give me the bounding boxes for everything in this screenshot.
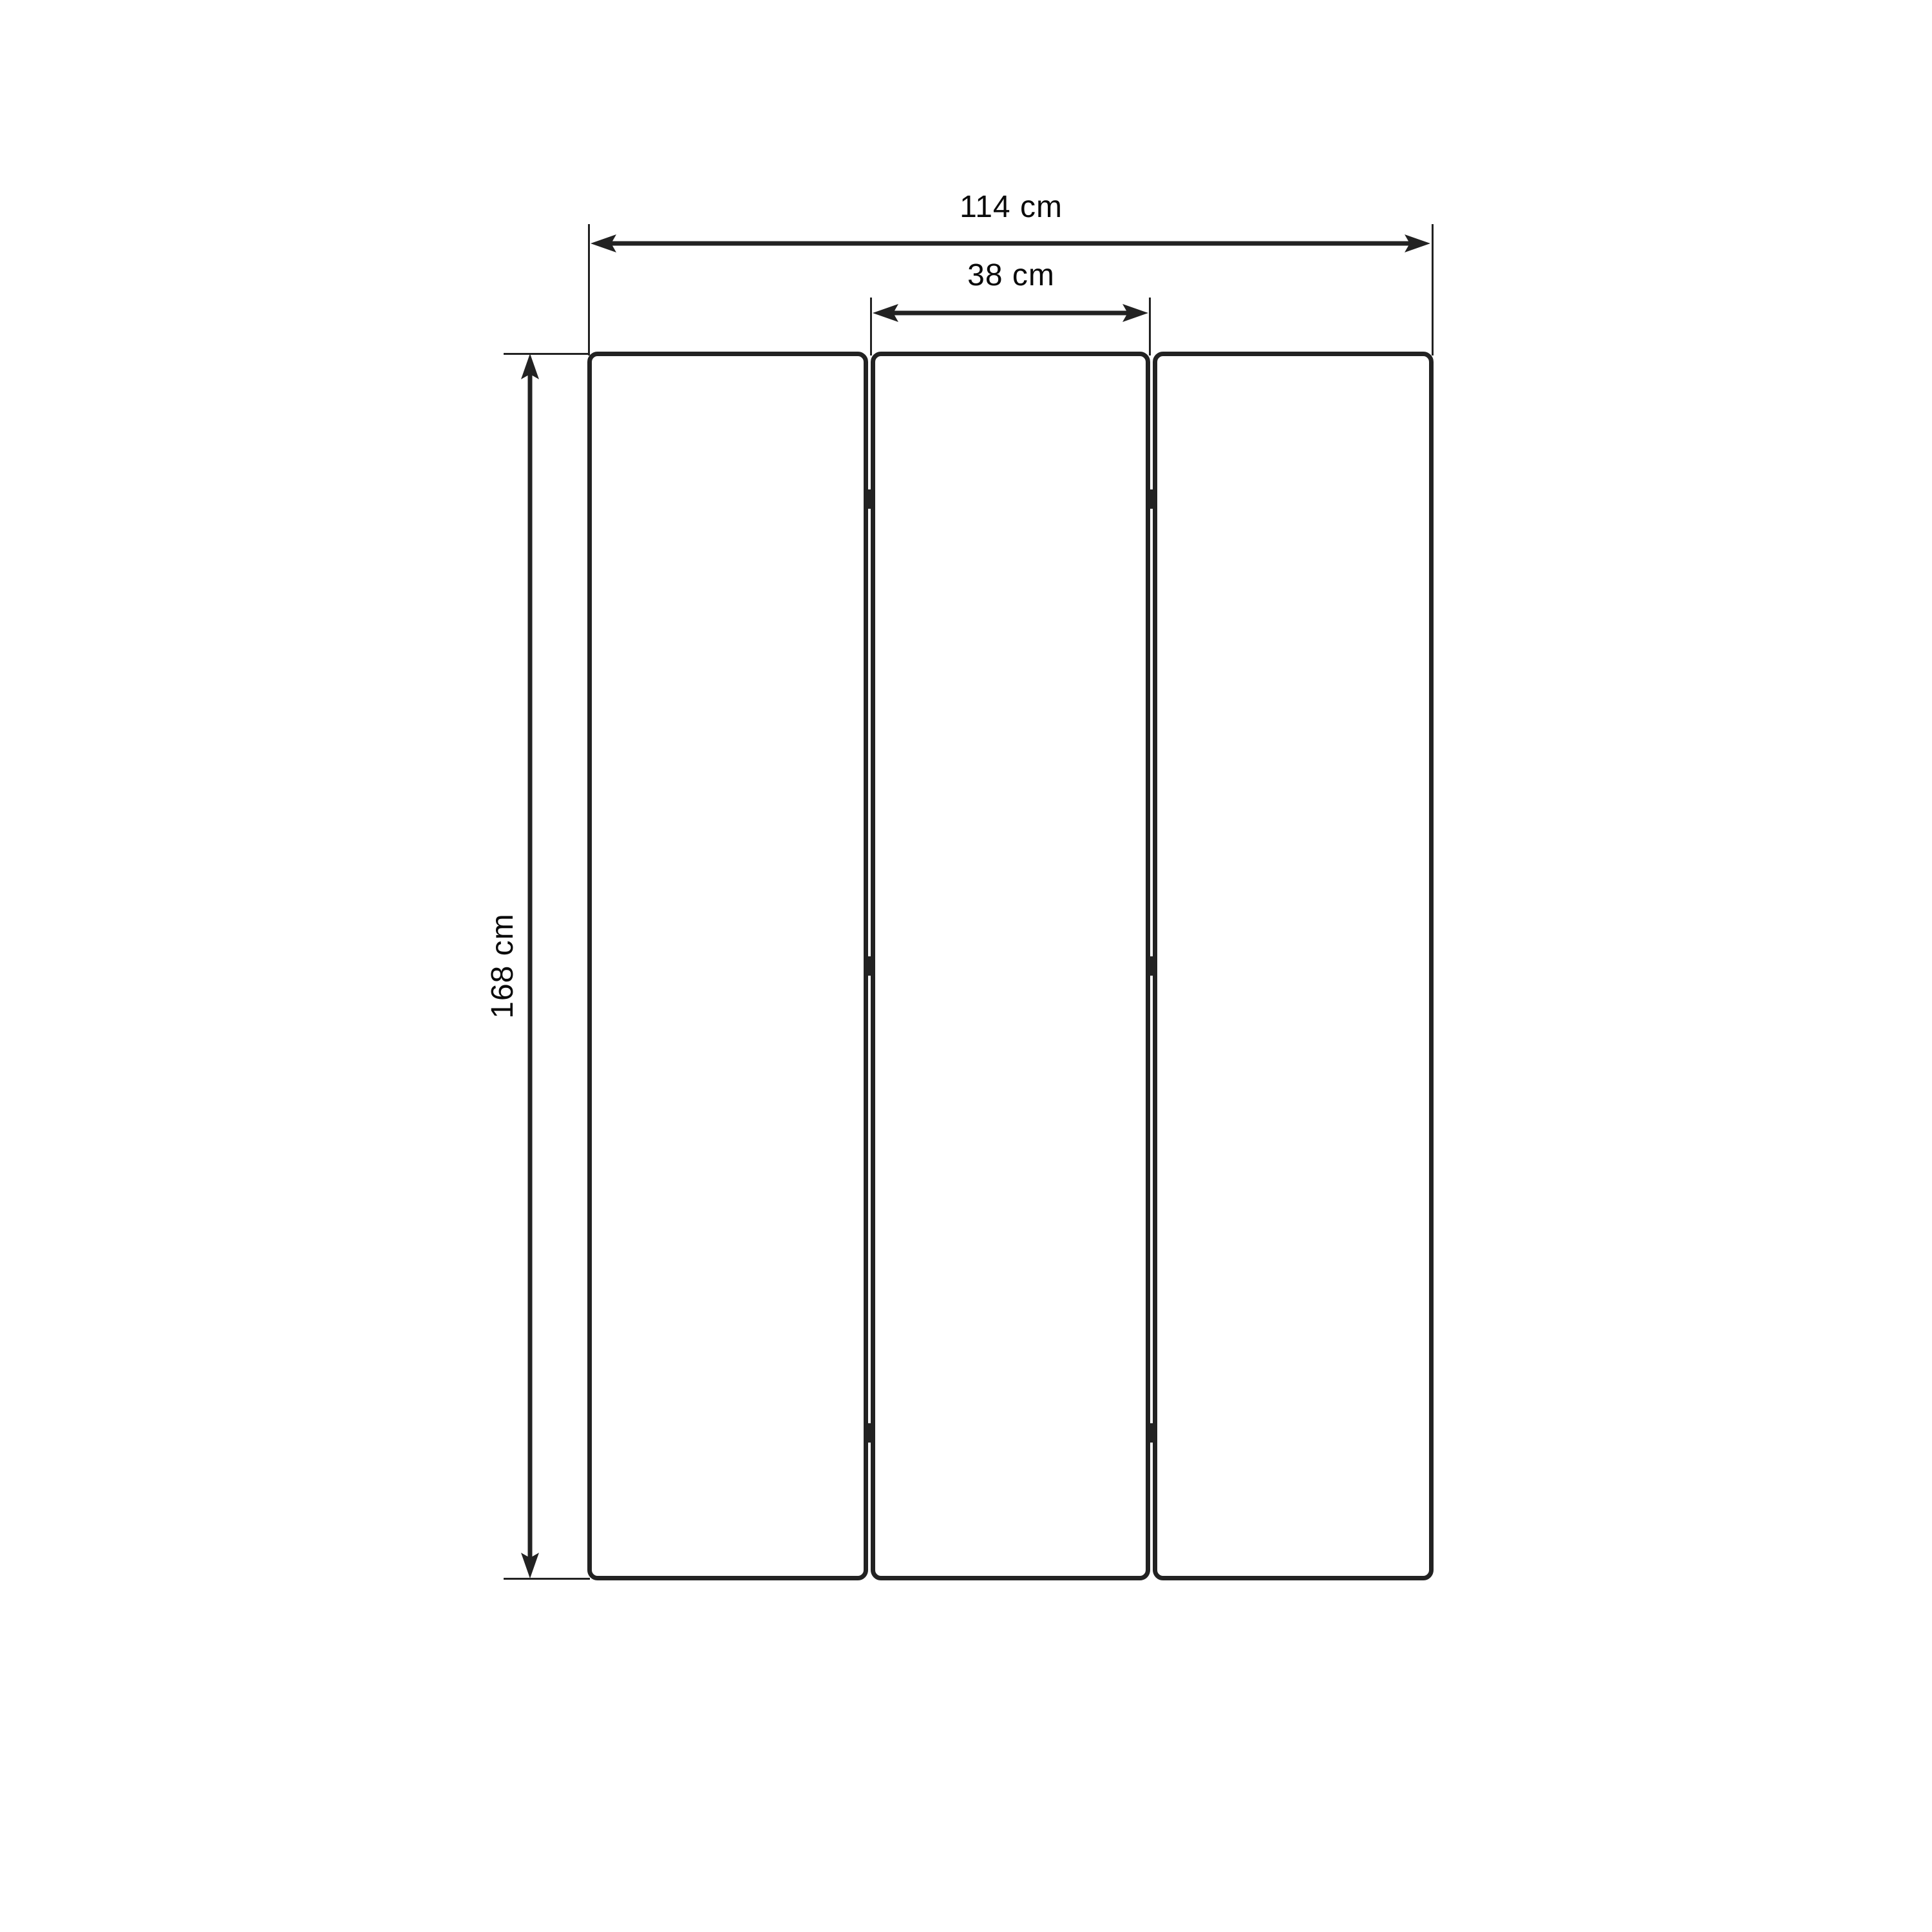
panel-right	[1153, 352, 1434, 1580]
dimension-arrow-panel-width	[871, 301, 1150, 325]
hinge-left-bottom	[865, 1423, 874, 1443]
extension-line-height-bottom	[504, 1578, 590, 1580]
dimension-label-height: 168 cm	[486, 869, 520, 1063]
hinge-right-bottom	[1147, 1423, 1156, 1443]
hinge-left-top	[865, 489, 874, 509]
dimension-drawing: 114 cm 38 cm 168 cm	[0, 0, 1932, 1932]
dimension-label-panel-width: 38 cm	[914, 259, 1108, 292]
panel-left	[587, 352, 868, 1580]
hinge-right-top	[1147, 489, 1156, 509]
hinge-right-middle	[1147, 956, 1156, 976]
dimension-label-total-width: 114 cm	[914, 191, 1108, 224]
dimension-arrow-total-width	[589, 232, 1432, 255]
extension-line-height-top	[504, 353, 590, 355]
hinge-left-middle	[865, 956, 874, 976]
dimension-arrow-height	[518, 352, 542, 1580]
panel-middle	[871, 352, 1150, 1580]
